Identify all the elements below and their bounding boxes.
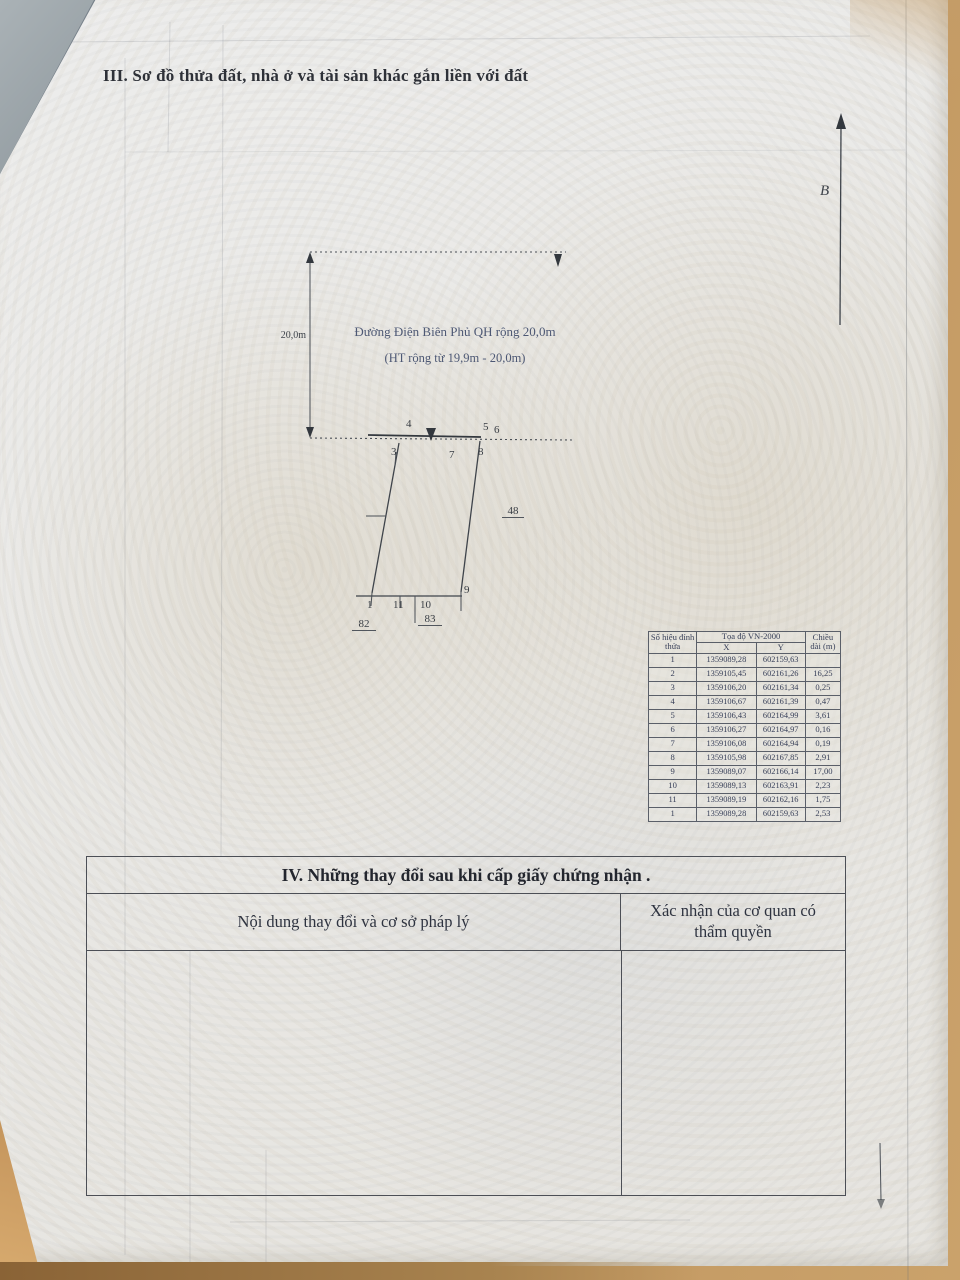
vertex-label-11: 11 [393, 599, 404, 611]
north-label: B [820, 183, 829, 200]
coord-row: 11359089,28602159,63 [649, 653, 841, 667]
section-iv-body-left [87, 951, 622, 1195]
page-border-line [906, 0, 908, 1280]
north-arrow-head [836, 113, 846, 129]
crease-line [221, 25, 223, 857]
road-width-label: 20,0m [258, 330, 306, 341]
coord-row: 91359089,07602166,1417,00 [649, 765, 841, 779]
section-iv-body-right [622, 951, 845, 1195]
crease-line [168, 22, 170, 152]
coord-col-x-header: X [697, 642, 756, 653]
vertex-label-5: 5 [483, 421, 489, 433]
coord-row: 41359106,67602161,390,47 [649, 695, 841, 709]
road-bottom-edge [310, 438, 572, 440]
vertex-label-9: 9 [464, 584, 470, 596]
crease-line [60, 36, 870, 42]
vertex-label-3: 3 [391, 446, 397, 458]
page-corner-mark [880, 1143, 881, 1200]
wood-surface-top-right [850, 0, 960, 80]
coord-row: 111359089,19602162,161,75 [649, 793, 841, 807]
coord-row: 81359105,98602167,852,91 [649, 751, 841, 765]
frontage-marker-arrow [426, 428, 436, 441]
coord-row: 61359106,27602164,970,16 [649, 723, 841, 737]
plot-left-edge [372, 443, 399, 593]
coord-row: 51359106,43602164,993,61 [649, 709, 841, 723]
coord-group-header: Tọa độ VN-2000 [697, 632, 806, 643]
scanned-photo: { "page": { "section3_title": "III. Sơ đ… [0, 0, 960, 1280]
coord-table-body: 11359089,28602159,6321359105,45602161,26… [649, 653, 841, 821]
section-iii-title: III. Sơ đồ thửa đất, nhà ở và tài sản kh… [103, 66, 703, 86]
vertex-label-8: 8 [478, 446, 484, 458]
section-iv-title: IV. Những thay đổi sau khi cấp giấy chứn… [87, 857, 845, 894]
road-note-label: (HT rộng từ 19,9m - 20,0m) [318, 351, 592, 366]
coord-col-length-header: Chiều dài (m) [805, 632, 840, 654]
vertex-label-6: 6 [494, 424, 500, 436]
coord-row: 31359106,20602161,340,25 [649, 681, 841, 695]
section-iv-header-row: Nội dung thay đổi và cơ sở pháp lý Xác n… [87, 894, 845, 951]
crease-line [125, 150, 905, 152]
vertex-label-4: 4 [406, 418, 412, 430]
wood-surface-bottom [0, 1262, 700, 1280]
coordinate-table: Số hiệu đỉnh thửa Tọa độ VN-2000 Chiều d… [648, 631, 841, 822]
section-iv-right-header: Xác nhận của cơ quan có thẩm quyền [621, 894, 845, 950]
road-edge-arrow [554, 254, 562, 267]
coord-col-y-header: Y [756, 642, 805, 653]
coord-row: 101359089,13602163,912,23 [649, 779, 841, 793]
coord-col-vertex-header: Số hiệu đỉnh thửa [649, 632, 697, 654]
section-iv-body [87, 951, 845, 1195]
vertex-label-1: 1 [367, 599, 373, 611]
adjacent-plot-48: 48 [502, 505, 524, 518]
section-iv-left-header: Nội dung thay đổi và cơ sở pháp lý [87, 894, 621, 950]
adjacent-plot-83: 83 [418, 613, 442, 626]
coord-row: 11359089,28602159,632,53 [649, 807, 841, 821]
crease-line [230, 1220, 690, 1222]
plot-frontage-edge [368, 435, 481, 437]
vertex-label-10: 10 [420, 599, 431, 611]
section-iv-table: IV. Những thay đổi sau khi cấp giấy chứn… [86, 856, 846, 1196]
road-name-label: Đường Điện Biên Phủ QH rộng 20,0m [318, 324, 592, 340]
document-page: III. Sơ đồ thửa đất, nhà ở và tài sản kh… [0, 0, 948, 1266]
adjacent-plot-82: 82 [352, 618, 376, 631]
page-corner-arrow [877, 1199, 885, 1209]
plot-right-edge [461, 441, 480, 592]
north-arrow-line [840, 126, 841, 325]
coord-row: 71359106,08602164,940,19 [649, 737, 841, 751]
vertex-label-7: 7 [449, 449, 455, 461]
coord-row: 21359105,45602161,2616,25 [649, 667, 841, 681]
dimension-arrow-bottom [306, 427, 314, 438]
dimension-arrow-top [306, 252, 314, 263]
